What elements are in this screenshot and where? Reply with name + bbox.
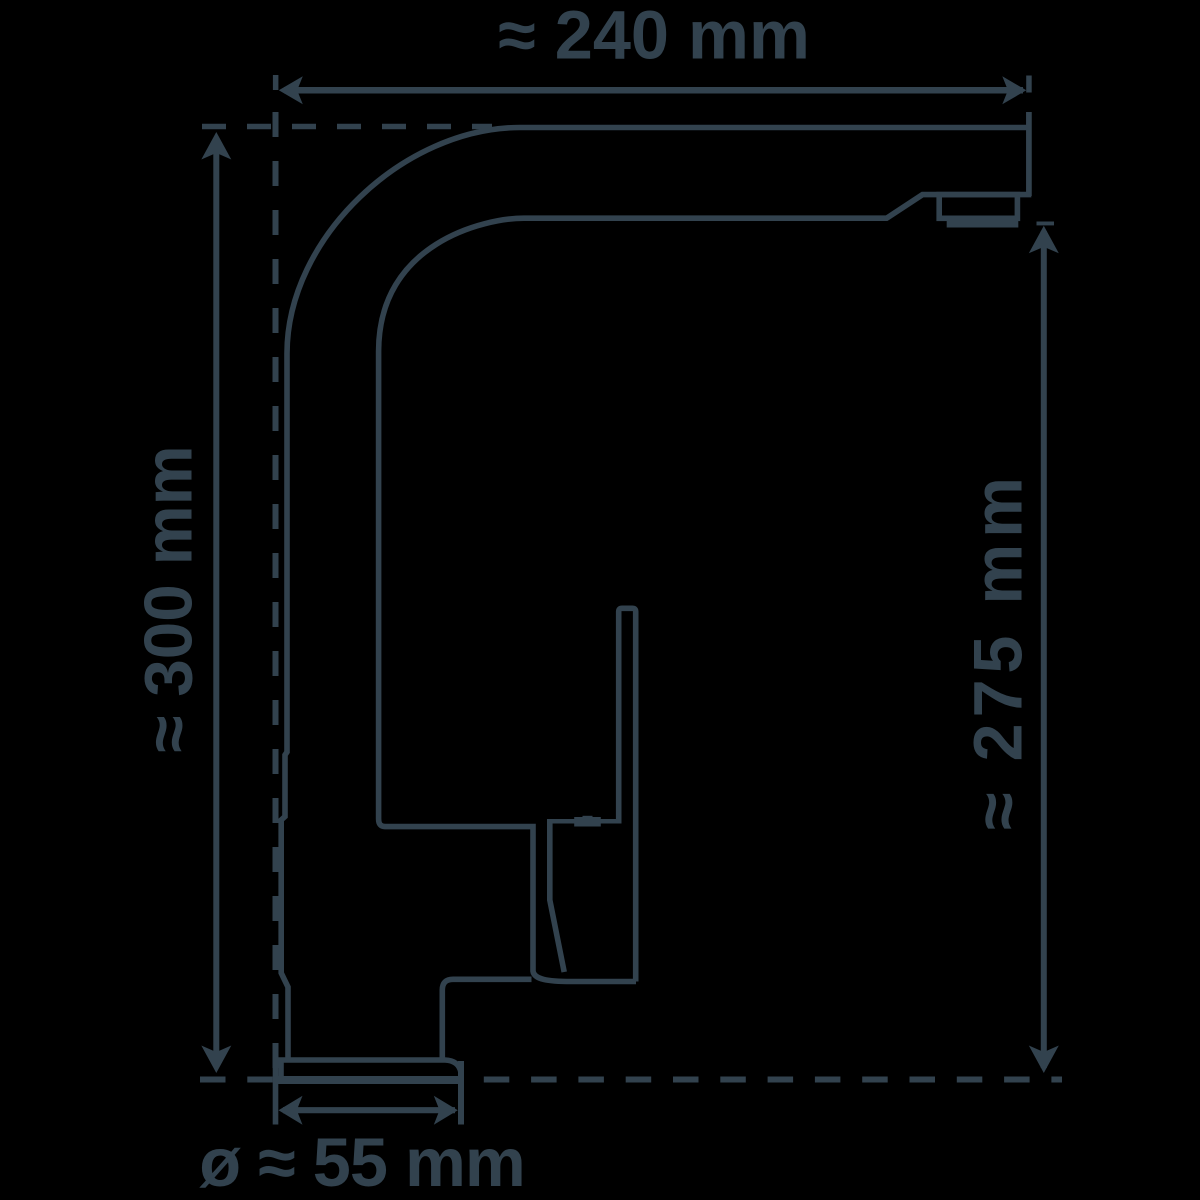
svg-text:≈ 240 mm: ≈ 240 mm [498, 0, 810, 73]
svg-text:≈ 300 mm: ≈ 300 mm [132, 445, 207, 752]
svg-text:≈ 275 mm: ≈ 275 mm [960, 471, 1037, 830]
svg-text:ø ≈ 55 mm: ø ≈ 55 mm [199, 1124, 525, 1200]
